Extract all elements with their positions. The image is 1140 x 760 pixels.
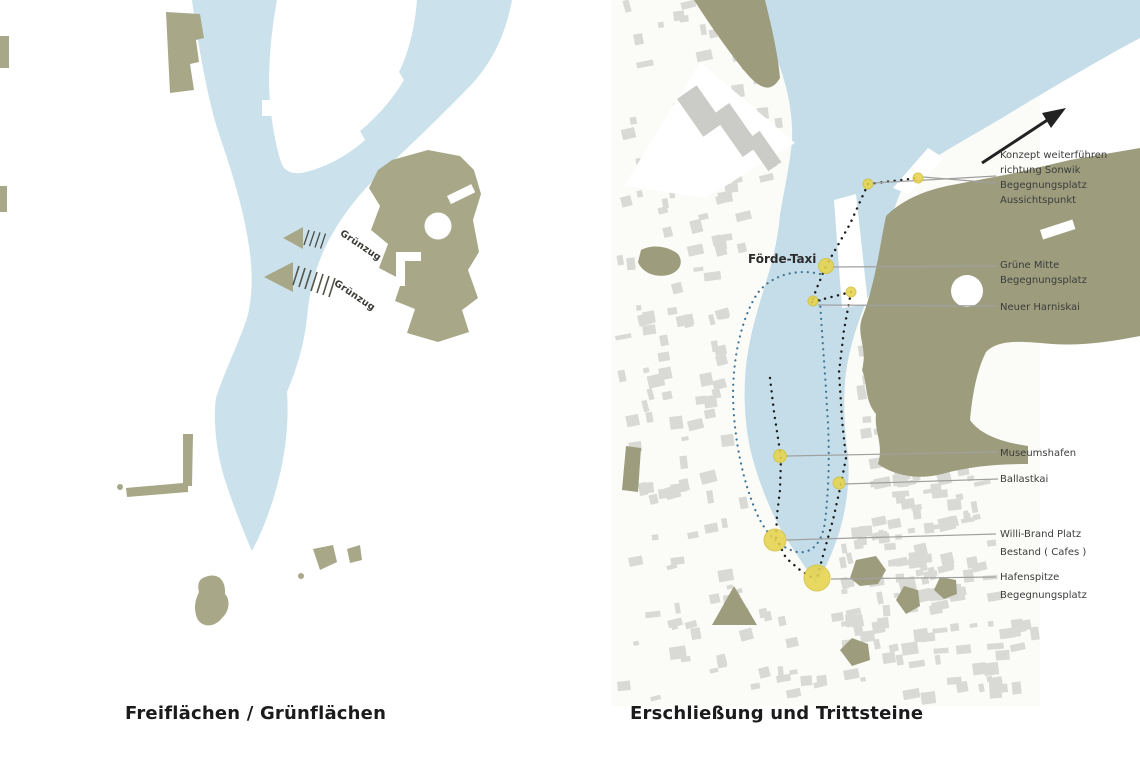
green-blob-se3-left: [298, 573, 304, 579]
building-block: [999, 627, 1016, 639]
building-block: [966, 556, 978, 569]
callout-line: Begegnungsplatz: [1000, 587, 1140, 605]
building-block: [841, 589, 847, 594]
green-dot-left: [117, 484, 123, 490]
building-block: [924, 522, 935, 533]
building-block: [956, 681, 969, 693]
stop-foerde-taxi: [819, 259, 834, 274]
green-blob-south-left: [195, 576, 229, 626]
building-block: [626, 257, 636, 270]
building-block: [987, 539, 997, 546]
figure-canvas: Grünzug Grünzug Förde-Taxi Konzept weite…: [0, 0, 1140, 760]
building-block: [860, 630, 875, 643]
maps-svg: [0, 0, 1140, 760]
building-block: [717, 309, 729, 320]
building-block: [983, 662, 999, 676]
building-block: [717, 658, 727, 668]
green-edge-sliver2-left: [0, 186, 7, 212]
callout-ballastkai: Ballastkai: [1000, 472, 1140, 487]
callout-line: richtung Sonwik: [1000, 163, 1140, 178]
building-block: [862, 416, 871, 423]
building-block: [878, 533, 890, 544]
left-map: [0, 0, 512, 625]
callout-line: Begegnungsplatz: [1000, 178, 1140, 193]
building-block: [669, 645, 687, 660]
callout-museumshafen: Museumshafen: [1000, 446, 1140, 461]
building-block: [877, 617, 889, 629]
building-block: [658, 22, 664, 28]
building-block: [920, 632, 935, 642]
building-block: [845, 614, 853, 627]
callout-hafenspitze: Hafenspitze Begegnungsplatz: [1000, 569, 1140, 605]
building-block: [947, 498, 962, 511]
building-block: [778, 666, 784, 679]
building-block: [912, 506, 921, 519]
building-block: [857, 391, 867, 400]
green-notch-circle-left: [425, 213, 452, 240]
building-block: [860, 677, 866, 682]
building-block: [636, 305, 642, 311]
green-blob-se1-left: [313, 545, 337, 570]
callout-konzept: Konzept weiterführen richtung Sonwik Beg…: [1000, 148, 1140, 208]
right-map-caption: Erschließung und Trittsteine: [630, 703, 923, 724]
callout-willi-brand: Willi-Brand Platz Bestand ( Cafes ): [1000, 526, 1140, 562]
building-block: [851, 527, 862, 539]
quay-notch-left: [262, 100, 276, 116]
building-block: [669, 415, 683, 429]
building-block: [699, 372, 713, 387]
green-top-left: [166, 12, 204, 93]
stop-hafenspitze: [804, 565, 830, 591]
stop-harniskai-east: [846, 287, 856, 297]
building-block: [644, 482, 655, 494]
building-block: [988, 621, 994, 627]
left-map-caption: Freiflächen / Grünflächen: [125, 703, 386, 724]
callout-line: Museumshafen: [1000, 446, 1140, 461]
building-block: [956, 644, 971, 654]
concept-arrowhead: [1042, 108, 1066, 128]
building-block: [987, 643, 1004, 650]
building-block: [901, 641, 919, 656]
stop-north-1: [863, 179, 873, 189]
building-block: [883, 605, 891, 617]
building-block: [630, 117, 637, 125]
callout-line: Neuer Harniskai: [1000, 300, 1140, 315]
callout-gruene-mitte: Grüne Mitte Begegnungsplatz: [1000, 258, 1140, 288]
green-blob-se2-left: [347, 545, 362, 563]
stop-ballastkai: [833, 477, 845, 489]
building-block: [1014, 625, 1021, 636]
building-block: [642, 310, 656, 324]
building-block: [950, 623, 960, 632]
green-l-band-left: [126, 434, 193, 497]
callout-line: Konzept weiterführen: [1000, 148, 1140, 163]
callout-line: Grüne Mitte: [1000, 258, 1140, 273]
green-notch-circle-right: [951, 275, 983, 307]
callout-line: Hafenspitze: [1000, 569, 1140, 587]
stop-north-2: [913, 173, 923, 183]
building-block: [996, 683, 1008, 693]
building-block: [1011, 681, 1021, 694]
building-block: [831, 612, 844, 622]
callout-harniskai: Neuer Harniskai: [1000, 300, 1140, 315]
foerde-taxi-label: Förde-Taxi: [748, 252, 816, 266]
building-block: [884, 543, 896, 550]
building-block: [933, 648, 948, 654]
building-block: [670, 557, 684, 566]
stop-museumshafen: [774, 450, 787, 463]
building-block: [816, 675, 827, 687]
building-block: [720, 434, 734, 447]
callout-line: Aussichtspunkt: [1000, 193, 1140, 208]
green-big-east-left: [369, 150, 481, 342]
building-block: [860, 428, 872, 439]
building-block: [679, 15, 689, 23]
building-block: [690, 627, 701, 640]
callout-line: Bestand ( Cafes ): [1000, 544, 1140, 562]
building-block: [854, 539, 864, 549]
green-edge-sliver1-left: [0, 36, 9, 68]
building-block: [651, 534, 658, 541]
building-block: [679, 456, 688, 470]
building-block: [703, 395, 717, 409]
callout-line: Begegnungsplatz: [1000, 273, 1140, 288]
callout-line: Ballastkai: [1000, 472, 1140, 487]
stop-harniskai-west: [808, 296, 818, 306]
building-block: [800, 675, 812, 686]
building-block: [617, 681, 631, 692]
building-block: [642, 324, 656, 335]
building-block: [995, 650, 1010, 661]
building-block: [657, 351, 670, 362]
building-block: [882, 652, 896, 664]
callout-line: Willi-Brand Platz: [1000, 526, 1140, 544]
stop-willi-brand-platz: [764, 529, 786, 551]
